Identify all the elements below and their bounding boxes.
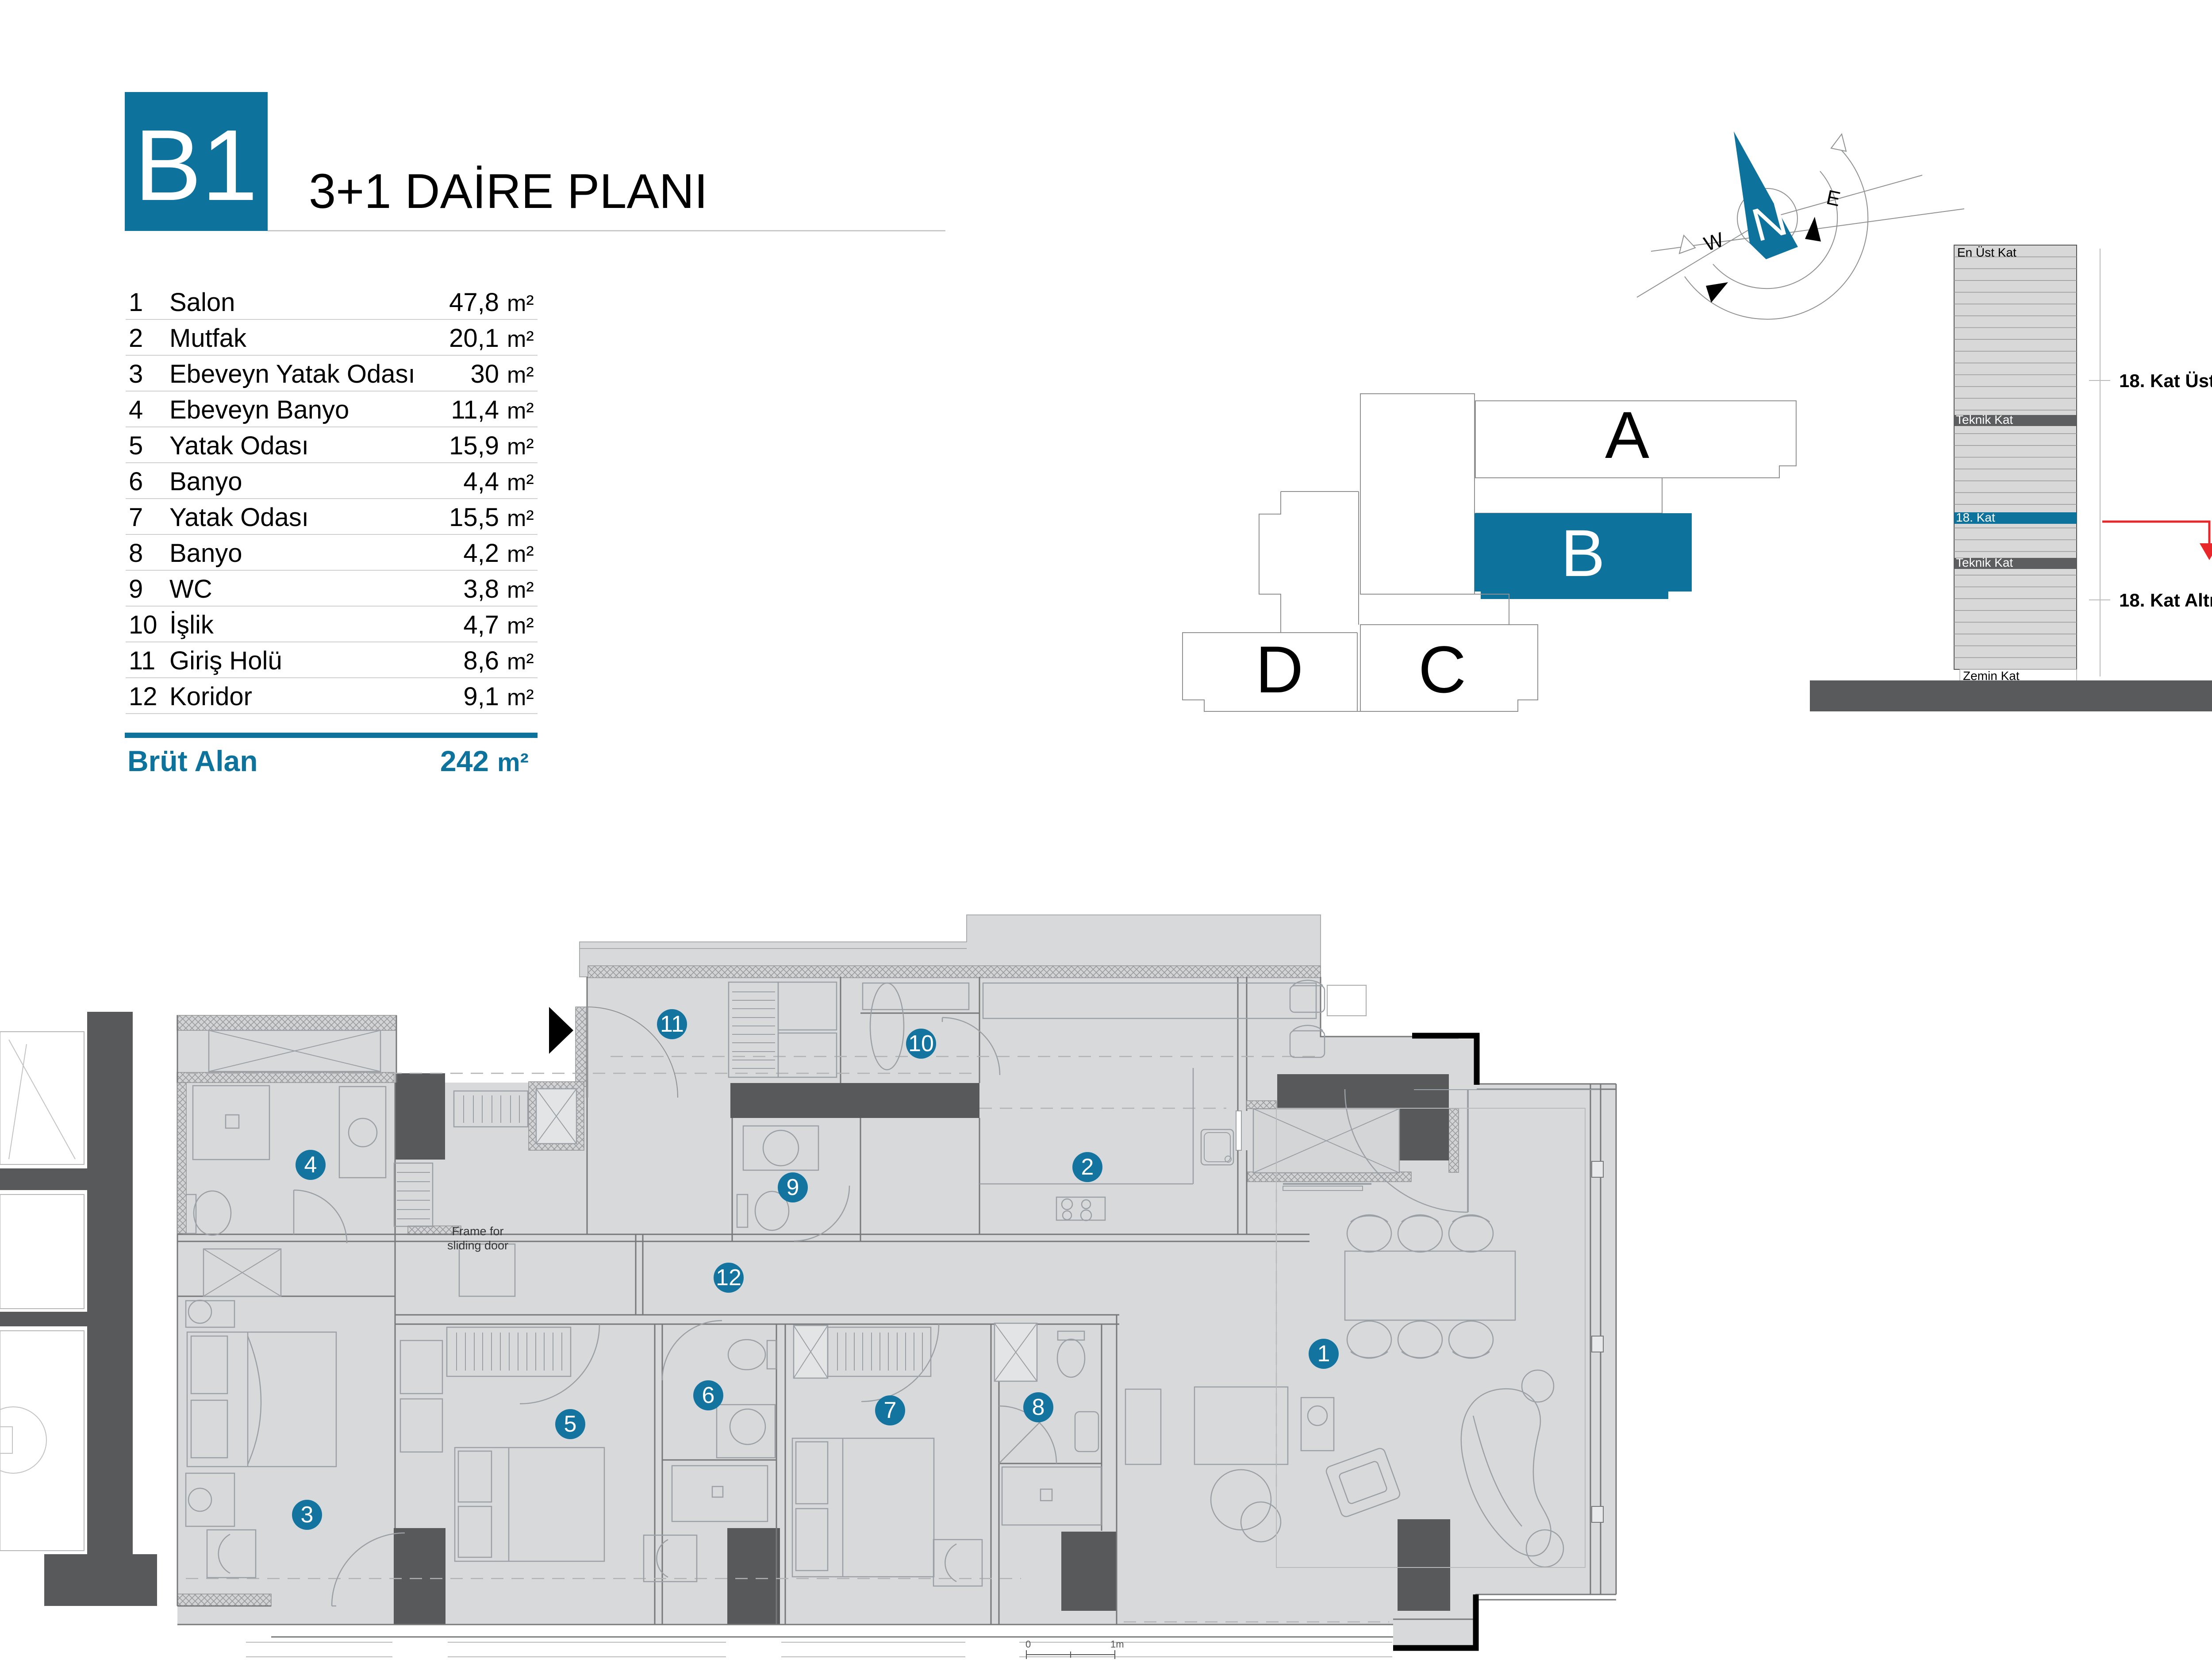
svg-text:m²: m²: [507, 542, 534, 567]
svg-text:4,4: 4,4: [463, 467, 499, 496]
svg-text:2: 2: [1081, 1154, 1094, 1180]
svg-text:m²: m²: [507, 470, 534, 495]
svg-text:Salon: Salon: [169, 288, 235, 317]
svg-text:11: 11: [129, 646, 155, 675]
svg-text:sliding door: sliding door: [447, 1239, 508, 1252]
svg-text:D: D: [1256, 632, 1303, 707]
svg-text:m²: m²: [507, 613, 534, 639]
svg-text:8: 8: [129, 539, 143, 568]
svg-text:12: 12: [716, 1265, 741, 1291]
svg-text:5: 5: [129, 431, 143, 460]
svg-text:3,8: 3,8: [463, 575, 499, 603]
svg-text:m²: m²: [507, 434, 534, 460]
svg-text:20,1: 20,1: [449, 324, 499, 353]
svg-text:Banyo: Banyo: [169, 539, 242, 568]
svg-text:m²: m²: [507, 398, 534, 424]
svg-text:7: 7: [129, 503, 143, 532]
svg-text:30: 30: [470, 360, 499, 388]
svg-text:242: 242: [440, 745, 489, 777]
svg-text:Banyo: Banyo: [169, 467, 242, 496]
svg-text:m²: m²: [507, 649, 534, 675]
svg-text:1: 1: [1317, 1341, 1330, 1367]
svg-text:3: 3: [301, 1502, 314, 1528]
svg-text:m²: m²: [507, 362, 534, 388]
svg-text:3: 3: [129, 360, 143, 388]
svg-text:9: 9: [129, 575, 143, 603]
svg-text:B: B: [1561, 516, 1605, 590]
svg-text:10: 10: [908, 1031, 934, 1056]
svg-text:8,6: 8,6: [463, 646, 499, 675]
svg-text:11: 11: [660, 1011, 684, 1037]
svg-text:5: 5: [564, 1411, 577, 1437]
svg-text:1m: 1m: [1110, 1639, 1124, 1650]
svg-text:İşlik: İşlik: [169, 611, 214, 639]
svg-text:m²: m²: [507, 326, 534, 352]
svg-text:10: 10: [129, 611, 157, 639]
svg-text:Giriş Holü: Giriş Holü: [169, 646, 282, 675]
svg-text:2: 2: [129, 324, 143, 353]
svg-text:15,9: 15,9: [449, 431, 499, 460]
svg-text:A: A: [1605, 398, 1649, 472]
svg-text:11,4: 11,4: [451, 396, 499, 424]
svg-text:1: 1: [129, 288, 143, 317]
svg-text:m²: m²: [507, 506, 534, 531]
svg-text:4,2: 4,2: [463, 539, 499, 568]
svg-text:WC: WC: [169, 575, 212, 603]
svg-text:Teknik Kat: Teknik Kat: [1956, 556, 2013, 569]
svg-text:B1: B1: [134, 109, 258, 222]
svg-text:4: 4: [129, 396, 143, 424]
svg-text:18. Kat Üstü: 18. Kat Üstü: [2119, 370, 2212, 391]
svg-text:4,7: 4,7: [463, 611, 499, 639]
svg-text:Yatak Odası: Yatak Odası: [169, 503, 309, 532]
svg-text:m²: m²: [507, 577, 534, 603]
svg-text:7: 7: [884, 1398, 897, 1423]
svg-text:Teknik Kat: Teknik Kat: [1956, 413, 2013, 426]
svg-text:W: W: [1701, 227, 1727, 255]
svg-text:Koridor: Koridor: [169, 682, 252, 711]
svg-text:18. Kat: 18. Kat: [1956, 511, 1995, 524]
svg-text:Ebeveyn Banyo: Ebeveyn Banyo: [169, 396, 349, 424]
svg-text:18. Kat Altı: 18. Kat Altı: [2119, 590, 2212, 611]
svg-text:9: 9: [787, 1175, 799, 1200]
svg-text:9,1: 9,1: [463, 682, 499, 711]
svg-text:E: E: [1824, 185, 1843, 211]
svg-text:Yatak Odası: Yatak Odası: [169, 431, 309, 460]
svg-text:4: 4: [304, 1152, 317, 1178]
svg-text:0: 0: [1025, 1639, 1031, 1650]
svg-text:m²: m²: [497, 748, 529, 777]
svg-text:Ebeveyn Yatak Odası: Ebeveyn Yatak Odası: [169, 360, 415, 388]
svg-text:8: 8: [1032, 1394, 1045, 1420]
svg-text:m²: m²: [507, 291, 534, 316]
svg-text:C: C: [1418, 632, 1466, 707]
svg-text:6: 6: [129, 467, 143, 496]
svg-text:15,5: 15,5: [449, 503, 499, 532]
svg-text:3+1 DAİRE PLANI: 3+1 DAİRE PLANI: [309, 164, 708, 219]
svg-text:6: 6: [702, 1383, 715, 1408]
svg-text:m²: m²: [507, 685, 534, 711]
svg-text:12: 12: [129, 682, 157, 711]
svg-text:Brüt Alan: Brüt Alan: [127, 745, 258, 777]
svg-text:47,8: 47,8: [449, 288, 499, 317]
svg-text:En Üst Kat: En Üst Kat: [1957, 246, 2016, 259]
svg-text:Mutfak: Mutfak: [169, 324, 247, 353]
svg-text:Frame for: Frame for: [452, 1225, 503, 1238]
